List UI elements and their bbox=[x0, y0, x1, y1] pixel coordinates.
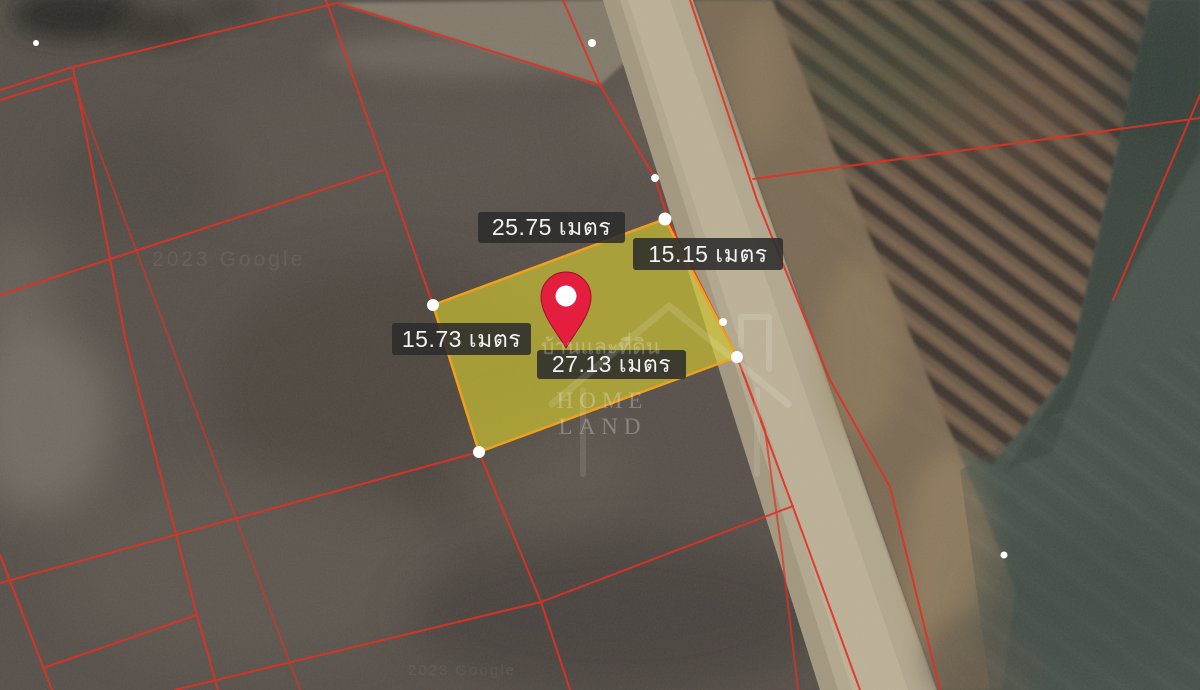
measurement-label-left: 15.73 เมตร bbox=[392, 323, 531, 355]
measurement-label-bottom: 27.13 เมตร bbox=[537, 350, 686, 379]
measurement-label-top: 25.75 เมตร bbox=[478, 212, 625, 243]
satellite-imagery bbox=[0, 0, 1200, 690]
measurement-label-right: 15.15 เมตร bbox=[633, 238, 783, 270]
satellite-land-plot-image: 25.75 เมตร 15.15 เมตร 15.73 เมตร 27.13 เ… bbox=[0, 0, 1200, 690]
